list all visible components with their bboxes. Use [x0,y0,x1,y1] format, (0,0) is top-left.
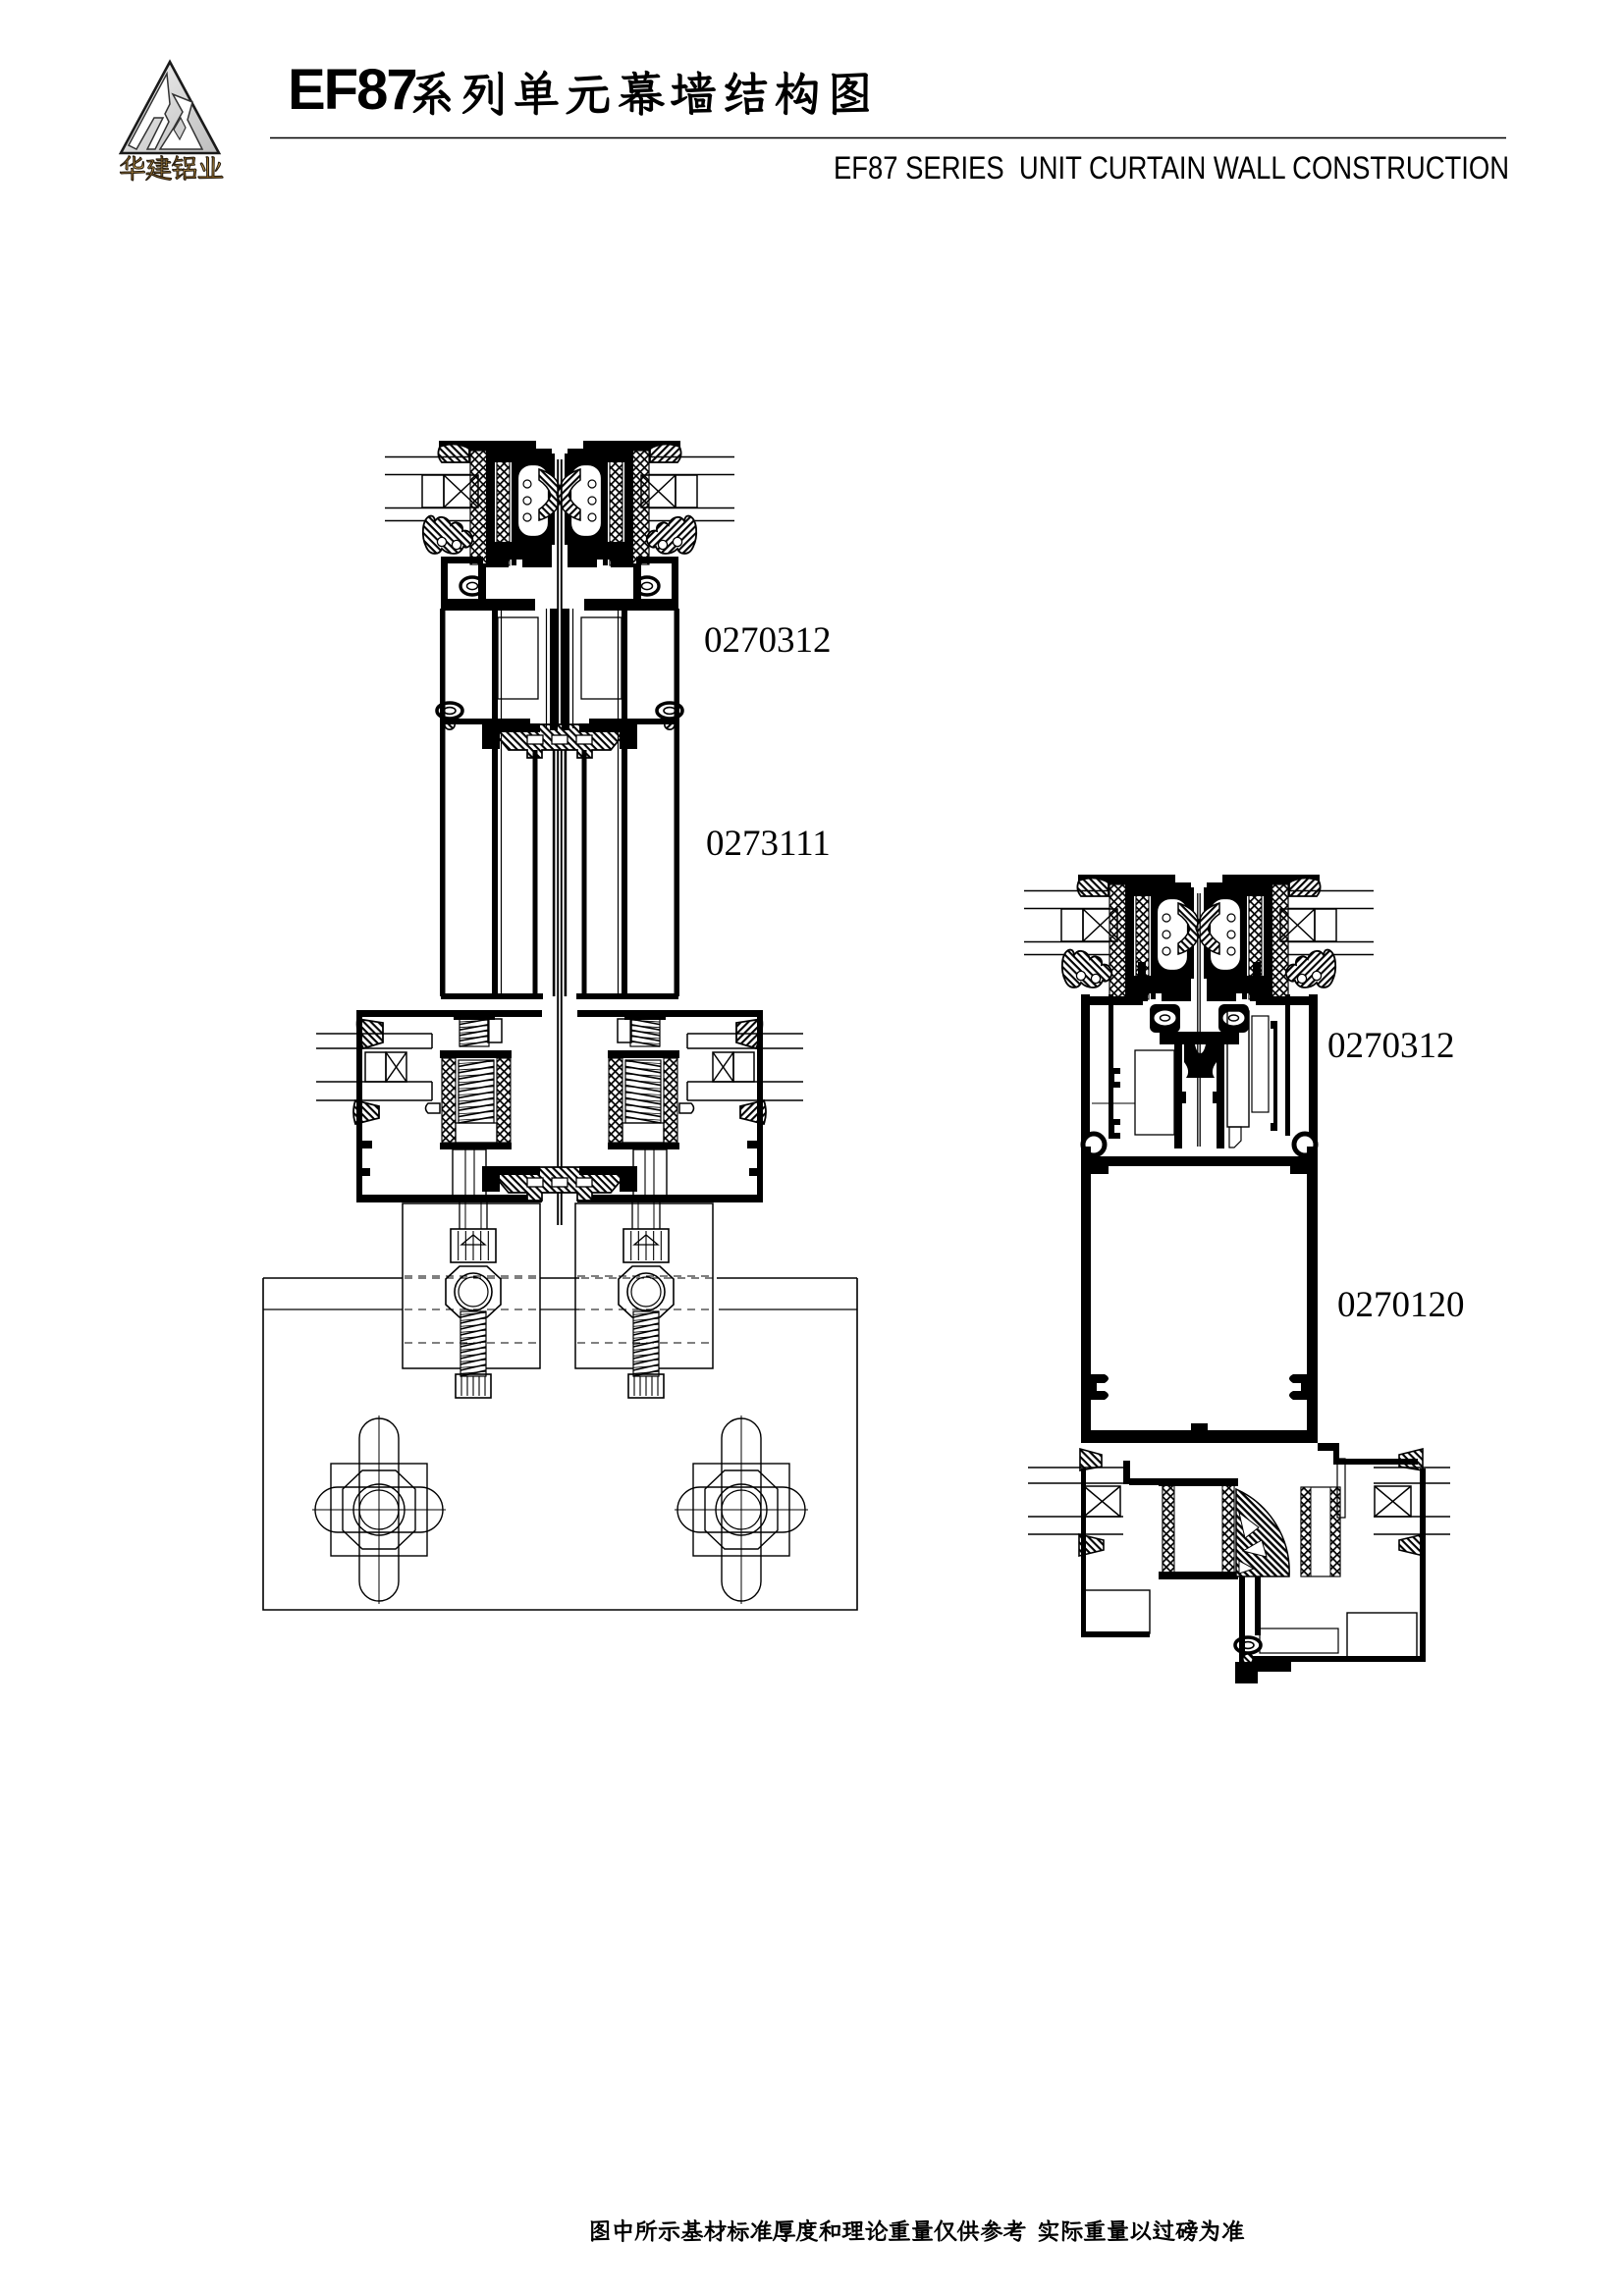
svg-text:0270312: 0270312 [704,620,832,661]
svg-text:EF87 SERIES UNIT CURTAIN WALL: EF87 SERIES UNIT CURTAIN WALL CONSTRUCTI… [834,150,1509,186]
svg-text:EF87: EF87 [288,58,416,122]
svg-text:0270120: 0270120 [1337,1285,1465,1325]
svg-text:0270312: 0270312 [1327,1026,1455,1066]
svg-text:0273111: 0273111 [706,824,831,864]
